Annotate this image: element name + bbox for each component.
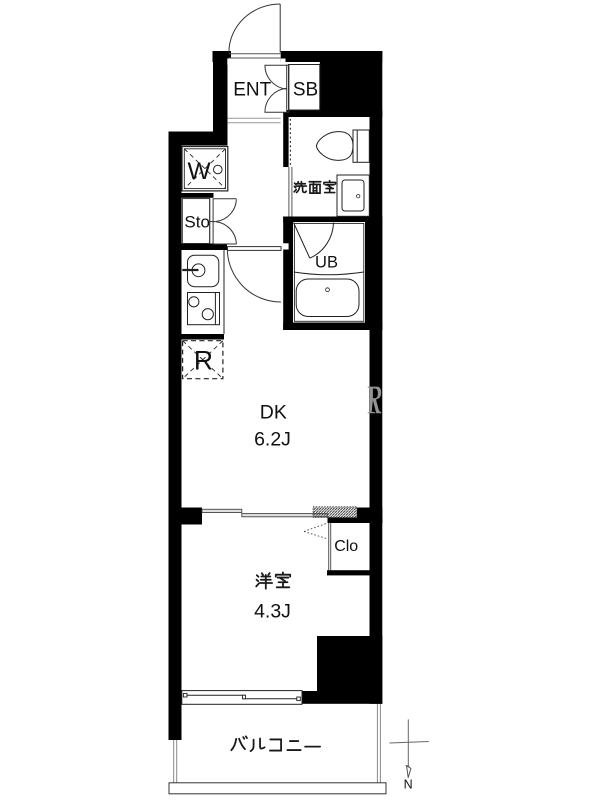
svg-text:SB: SB xyxy=(293,79,318,100)
svg-text:ENT: ENT xyxy=(233,79,271,100)
svg-text:UB: UB xyxy=(315,254,338,272)
svg-text:Clo: Clo xyxy=(334,538,358,555)
svg-text:Sto: Sto xyxy=(184,213,210,232)
svg-text:6.2J: 6.2J xyxy=(254,428,291,450)
svg-text:DK: DK xyxy=(260,402,287,424)
svg-text:N: N xyxy=(404,778,413,792)
svg-text:R: R xyxy=(194,346,213,376)
svg-text:4.3J: 4.3J xyxy=(254,601,291,623)
svg-text:W: W xyxy=(187,158,211,185)
